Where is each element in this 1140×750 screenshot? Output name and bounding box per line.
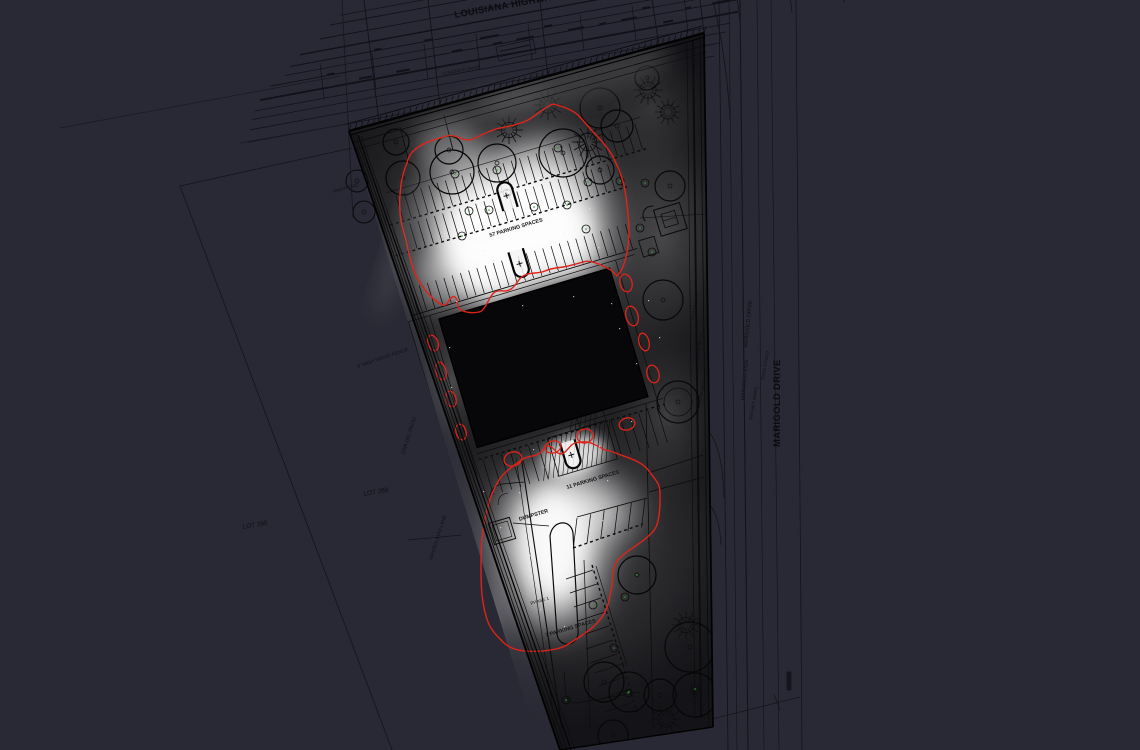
svg-text:MARIGOLD DRIVE: MARIGOLD DRIVE bbox=[772, 359, 783, 447]
